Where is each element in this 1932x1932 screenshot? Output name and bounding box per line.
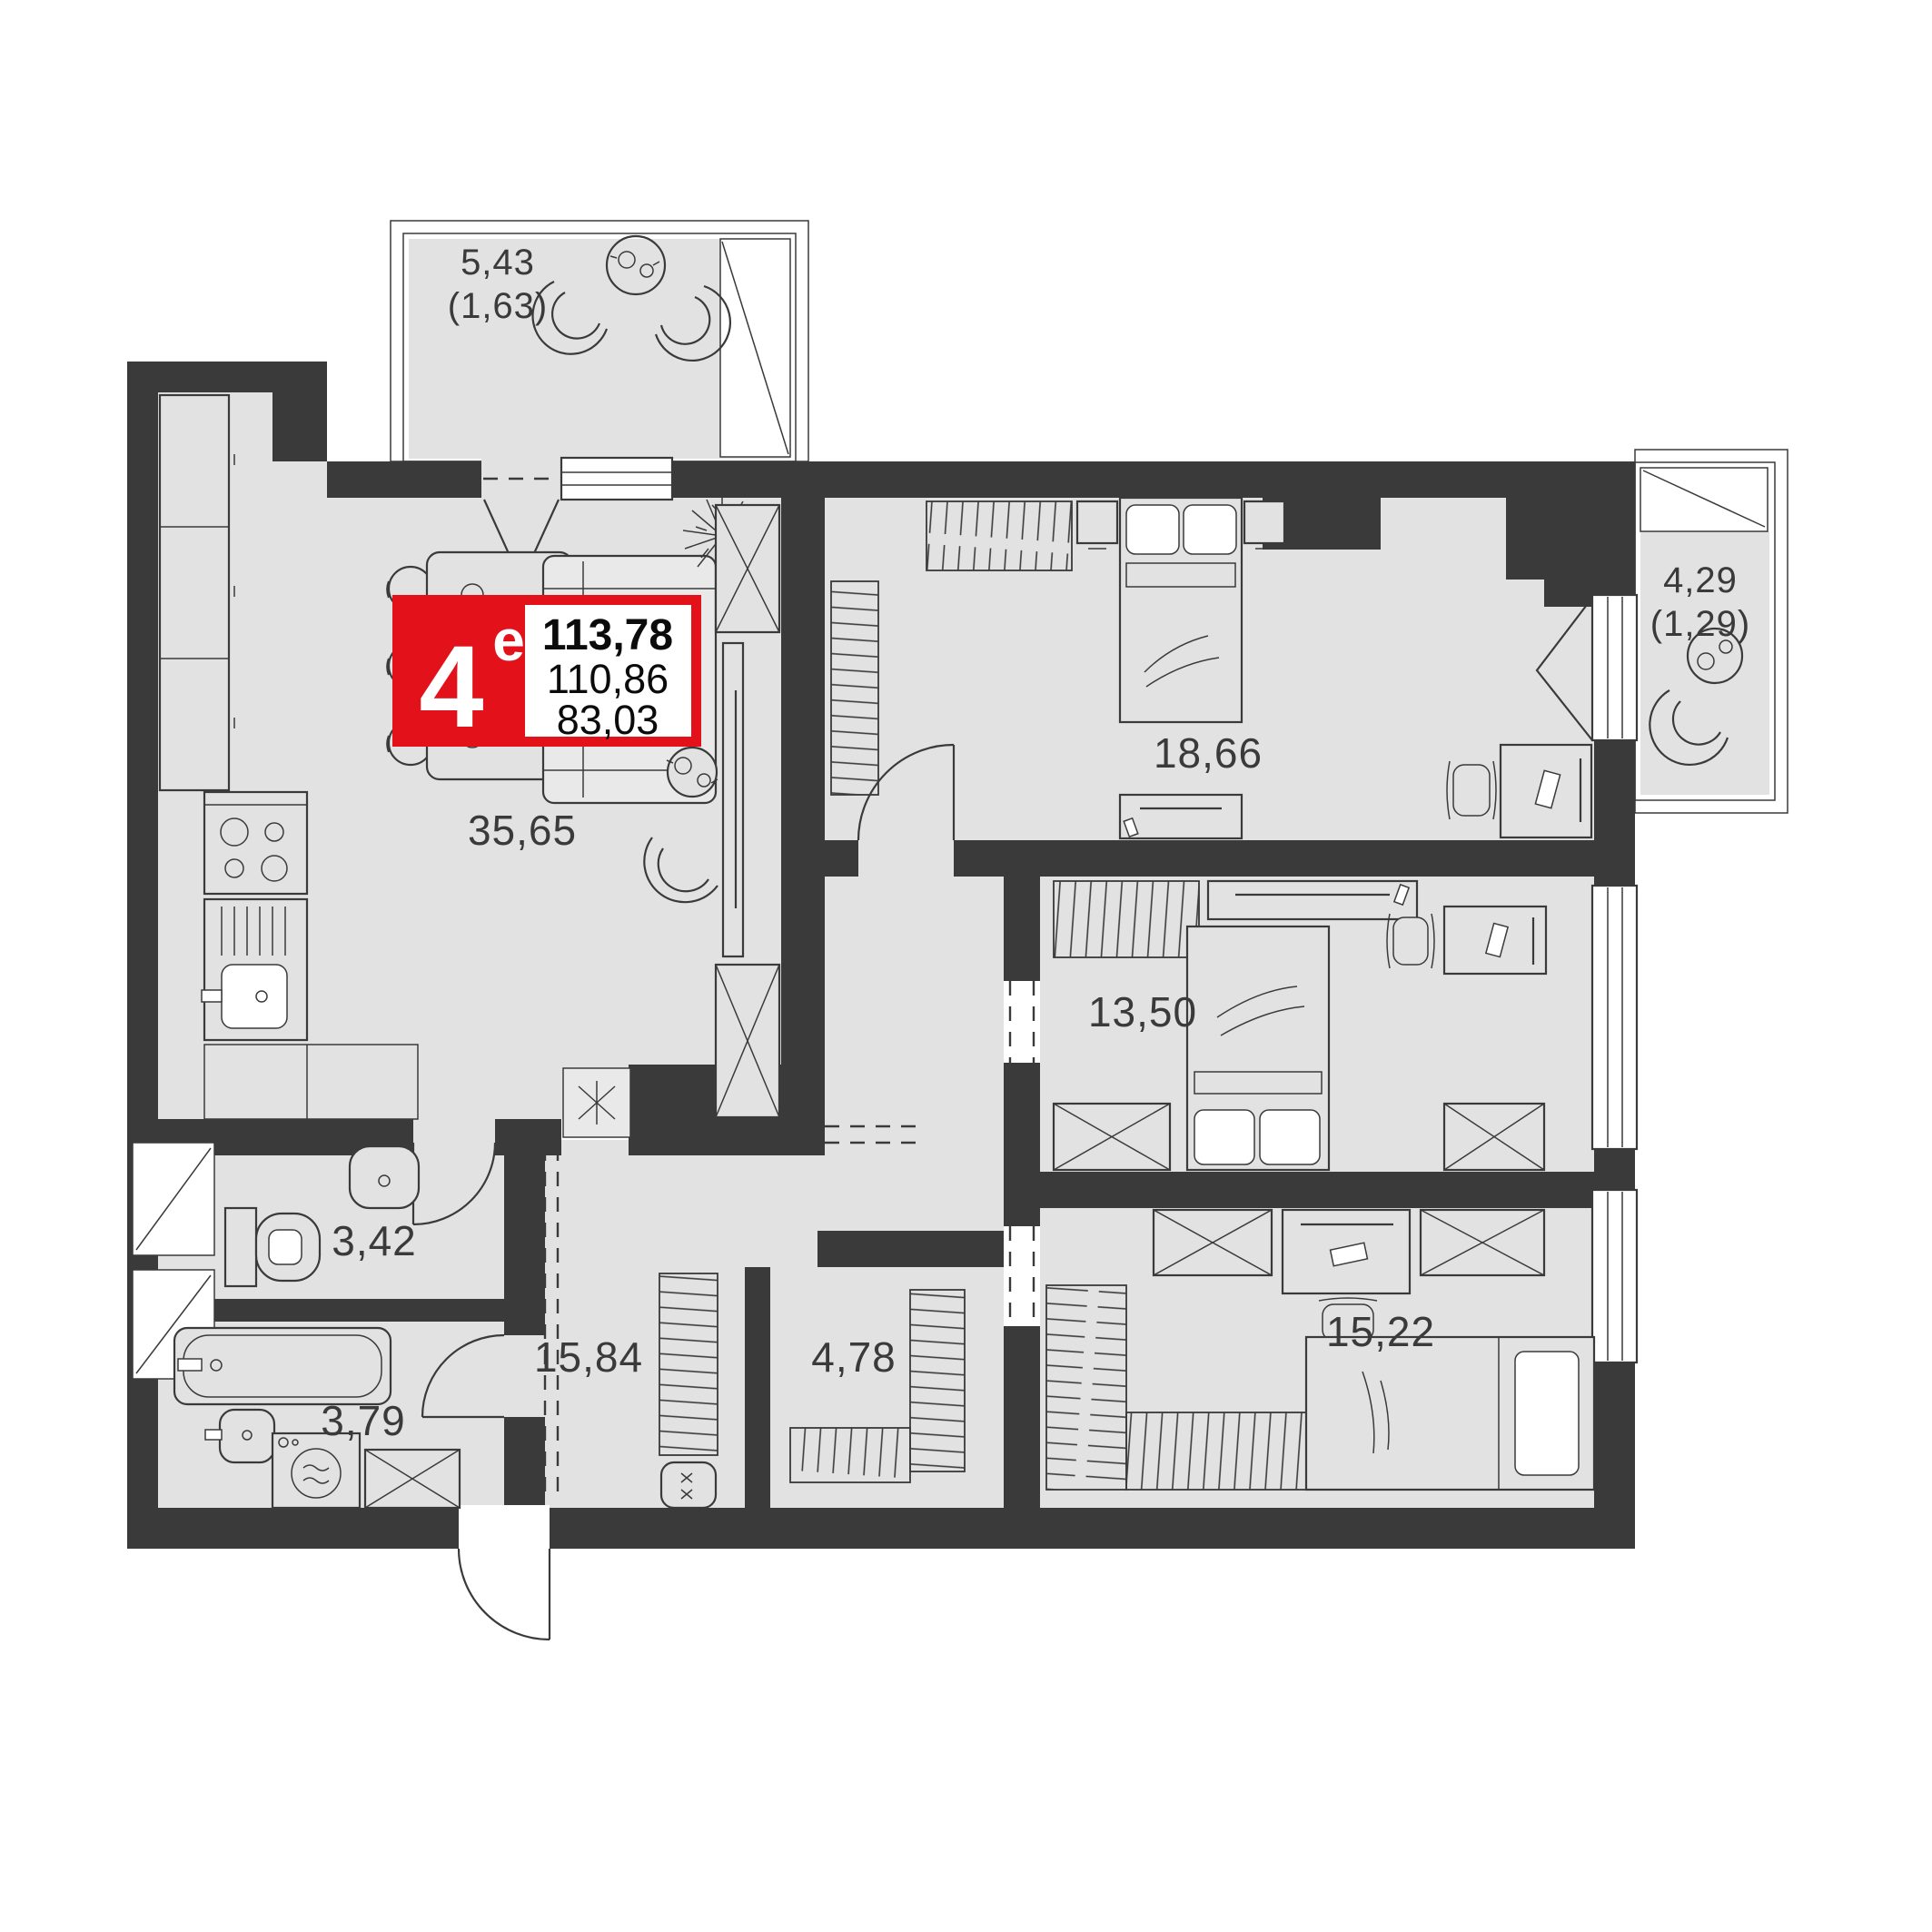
wardrobe-room-area-label: 4,78: [811, 1333, 897, 1381]
floor-passage: [825, 1113, 1004, 1155]
balcony-right-reduced-label: (1,29): [1650, 604, 1751, 644]
stove-icon: [204, 792, 307, 894]
wardrobe-x-icon: [1154, 1210, 1272, 1275]
closet-icon: [831, 581, 878, 795]
closet-icon: [1054, 881, 1199, 957]
balcony-right-window: [1640, 468, 1768, 531]
bathtub-icon: [174, 1328, 391, 1404]
living-window: [561, 458, 672, 500]
unit-area-living: 83,03: [557, 697, 659, 743]
coffee-table-icon: [667, 748, 718, 797]
bathroom-area-label: 3,79: [321, 1397, 406, 1444]
wardrobe-x-icon: [1054, 1104, 1170, 1170]
hall-closet-icon: [659, 1273, 718, 1455]
nightstand-icon: [1244, 501, 1284, 543]
entrance-door-arc-icon: [459, 1549, 550, 1640]
unit-area-total: 113,78: [542, 611, 673, 659]
double-bed-icon: [1120, 498, 1242, 722]
tv-unit-icon: [723, 643, 743, 956]
floor-plan-canvas: 5,43 (1,63) 4,29 (1,29): [0, 0, 1932, 1932]
left-window: [133, 1143, 214, 1255]
balcony-top-area-label: 5,43: [461, 243, 535, 282]
office-chair-icon: [1447, 761, 1496, 819]
closet-icon: [790, 1428, 910, 1482]
closet-icon: [926, 501, 1072, 570]
utility-box-icon: [563, 1068, 630, 1137]
kitchen-sink-icon: [202, 899, 307, 1040]
living-kitchen-area-label: 35,65: [468, 807, 577, 854]
bedroom-master-area-label: 18,66: [1154, 729, 1263, 777]
unit-type-letter: е: [492, 608, 525, 673]
closet-icon: [1046, 1285, 1126, 1490]
wardrobe-x-icon: [1421, 1210, 1544, 1275]
balcony-right: 4,29 (1,29): [1635, 450, 1788, 813]
kitchen-cabinets-icon: [160, 395, 234, 790]
unit-area-secondary: 110,86: [547, 656, 669, 702]
balcony-right-area-label: 4,29: [1663, 560, 1738, 600]
bedroom-lower-area-label: 15,22: [1326, 1308, 1435, 1355]
tv-shelf-icon: [1208, 881, 1417, 919]
balcony-top: 5,43 (1,63): [391, 221, 808, 461]
double-bed-icon: [1187, 926, 1329, 1170]
bedroom-middle-window: [1592, 886, 1637, 1149]
toilet-icon: [225, 1208, 320, 1286]
unit-badge: 4 е 113,78 110,86 83,03: [392, 595, 701, 752]
single-bed-icon: [1306, 1337, 1594, 1490]
unit-rooms-count: 4: [419, 622, 483, 752]
wc-area-label: 3,42: [332, 1217, 417, 1264]
closet-icon: [910, 1290, 965, 1471]
wardrobe-x-icon: [365, 1450, 460, 1508]
hallway-area-label: 15,84: [534, 1333, 643, 1381]
shoe-bench-icon: [661, 1462, 716, 1508]
floor-plan-page: 5,43 (1,63) 4,29 (1,29): [0, 0, 1932, 1932]
washing-machine-icon: [272, 1433, 360, 1508]
wardrobe-x-icon: [1444, 1104, 1544, 1170]
nightstand-icon: [1077, 501, 1117, 543]
kitchen-counter-icon: [204, 1045, 418, 1119]
bedroom-middle-area-label: 13,50: [1088, 988, 1197, 1035]
tv-stand-icon: [1120, 795, 1242, 838]
bedroom-lower-window: [1592, 1190, 1637, 1362]
balcony-top-reduced-label: (1,63): [448, 286, 549, 326]
